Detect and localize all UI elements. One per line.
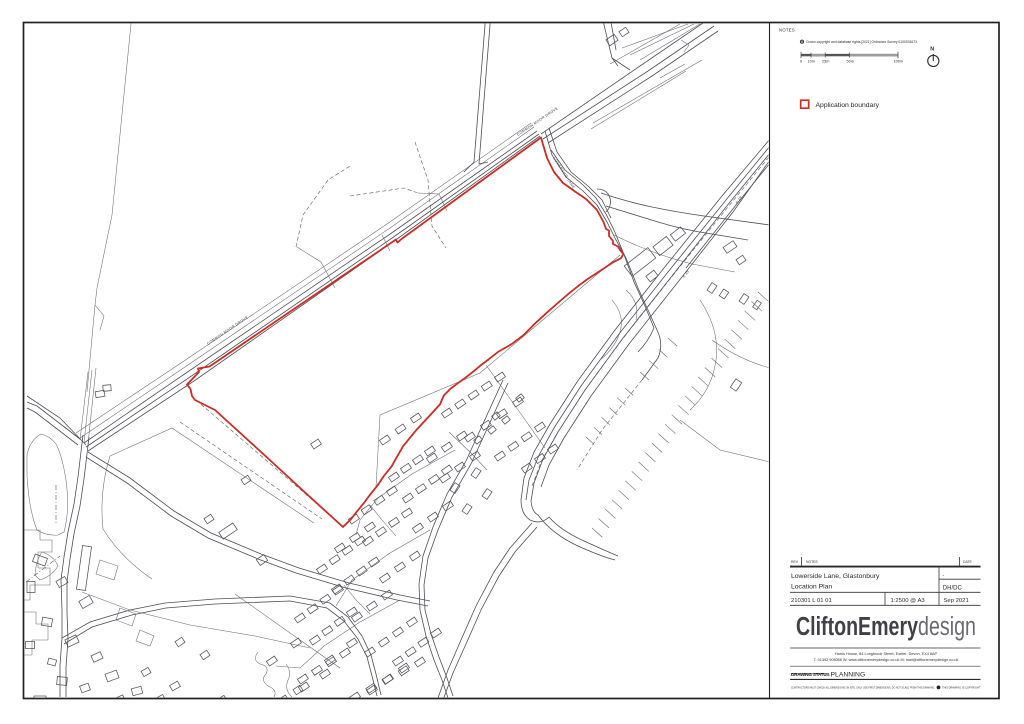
svg-text:NOTES: NOTES <box>806 560 818 564</box>
svg-text:design: design <box>918 613 976 641</box>
svg-text:CONTRACTORS MUST CHECK ALL DIM: CONTRACTORS MUST CHECK ALL DIMENSIONS ON… <box>791 685 935 689</box>
svg-text:100m: 100m <box>894 60 904 64</box>
svg-text:DH/DC: DH/DC <box>943 585 963 591</box>
svg-text:PLANNING: PLANNING <box>831 672 866 679</box>
svg-text:Crown copyright and database r: Crown copyright and database rights [202… <box>806 40 917 44</box>
svg-text:0: 0 <box>800 60 802 64</box>
svg-text:50m: 50m <box>847 60 854 64</box>
svg-text:Location Plan: Location Plan <box>791 584 832 591</box>
svg-text:DRAWING STATUS: DRAWING STATUS <box>791 672 830 677</box>
svg-text:DATE: DATE <box>963 560 973 564</box>
svg-text:10m: 10m <box>808 60 815 64</box>
svg-text:REV: REV <box>791 560 799 564</box>
svg-text:Sep 2021: Sep 2021 <box>944 598 969 604</box>
svg-text:THIS DRAWING IS COPYRIGHT: THIS DRAWING IS COPYRIGHT <box>942 685 981 689</box>
svg-text:Harris House, 84 Longbrook Str: Harris House, 84 Longbrook Street, Exete… <box>835 652 938 656</box>
svg-text:Lowerside Lane, Glastonbury: Lowerside Lane, Glastonbury <box>791 573 880 580</box>
svg-text:NOTES: NOTES <box>779 28 795 33</box>
svg-text:1:2500 @ A3: 1:2500 @ A3 <box>891 598 926 604</box>
svg-text:N: N <box>930 46 934 52</box>
svg-text:CliftonEmery: CliftonEmery <box>796 613 919 641</box>
svg-text:25m: 25m <box>822 60 829 64</box>
svg-text:Application boundary: Application boundary <box>816 102 880 109</box>
svg-text:210301 L 01 01: 210301 L 01 01 <box>791 598 832 604</box>
svg-text:T: 01392 908066 W: www.clif: T: 01392 908066 W: www.cliftonemerydesig… <box>814 658 959 662</box>
